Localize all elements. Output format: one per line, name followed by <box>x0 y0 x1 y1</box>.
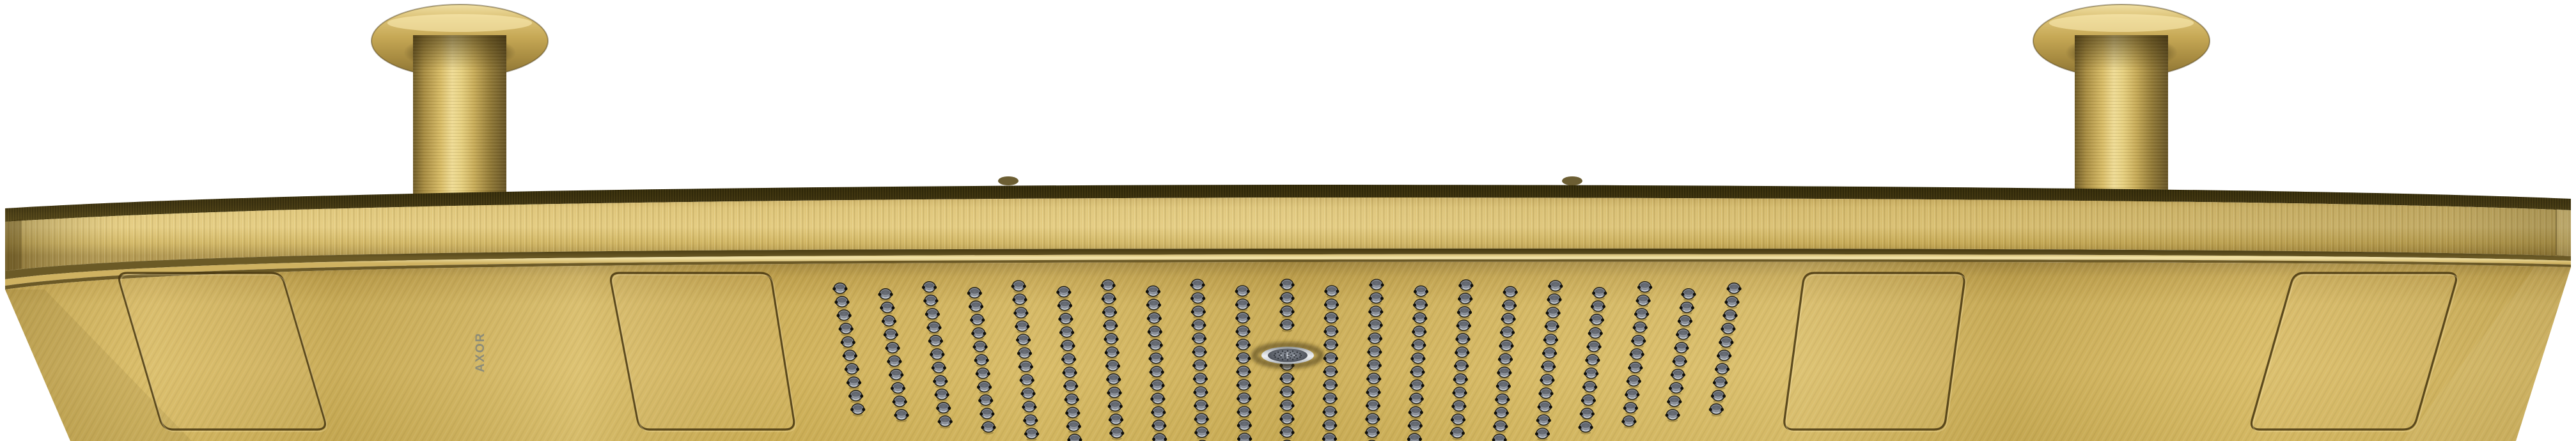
shower-arm-top-shade <box>2075 35 2168 70</box>
mounting-dimple <box>1562 176 1582 185</box>
flange-top-highlight <box>387 14 532 32</box>
shower-head-body: AXOR <box>5 176 2571 441</box>
product-photo-stage: AXOR <box>0 0 2576 441</box>
center-mist-jet <box>1254 345 1321 366</box>
waterfall-panel-inner-left <box>611 273 796 431</box>
flange-top-highlight <box>2049 14 2194 32</box>
brand-logo: AXOR <box>474 332 487 373</box>
mounting-dimple <box>998 176 1019 185</box>
body-left-endcap <box>5 219 22 271</box>
shower-product-illustration: AXOR <box>0 0 2576 441</box>
waterfall-panel-inner-right <box>1784 273 1966 431</box>
body-right-endcap <box>2556 209 2571 256</box>
shower-arm-top-shade <box>413 35 506 70</box>
